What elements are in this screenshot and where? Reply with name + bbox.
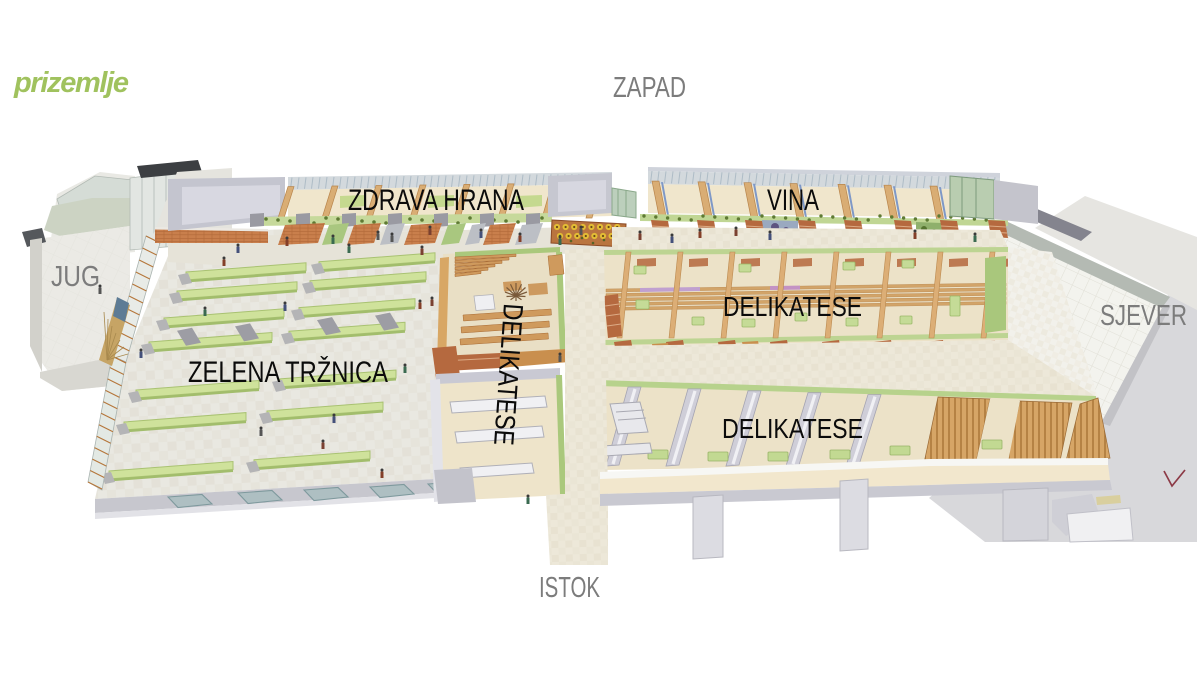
svg-text:DELIKATESE: DELIKATESE — [723, 291, 862, 322]
svg-text:ZELENA TRŽNICA: ZELENA TRŽNICA — [188, 356, 388, 389]
svg-text:prizemlje: prizemlje — [13, 67, 129, 99]
svg-text:ZAPAD: ZAPAD — [613, 72, 686, 104]
svg-text:ISTOK: ISTOK — [539, 572, 600, 604]
svg-text:SJEVER: SJEVER — [1100, 300, 1187, 332]
svg-text:VINA: VINA — [767, 184, 819, 217]
svg-text:DELIKATESE: DELIKATESE — [722, 413, 863, 444]
svg-text:JUG: JUG — [51, 261, 100, 293]
svg-text:ZDRAVA HRANA: ZDRAVA HRANA — [348, 184, 524, 217]
